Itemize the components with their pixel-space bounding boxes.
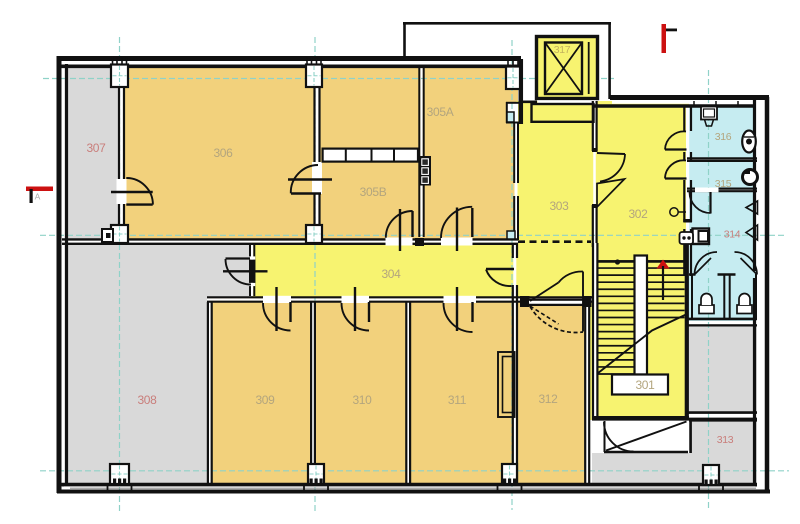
svg-text:305A: 305A [427, 105, 454, 119]
svg-text:316: 316 [715, 131, 732, 143]
svg-text:302: 302 [628, 207, 648, 221]
svg-text:311: 311 [448, 393, 467, 407]
svg-text:304: 304 [381, 267, 401, 281]
svg-text:313: 313 [717, 434, 734, 446]
svg-text:301: 301 [635, 378, 655, 392]
svg-text:305B: 305B [360, 185, 387, 199]
svg-text:306: 306 [213, 146, 233, 160]
svg-text:310: 310 [352, 393, 372, 407]
svg-text:303: 303 [549, 199, 569, 213]
svg-text:308: 308 [137, 393, 157, 407]
svg-text:A: A [35, 192, 41, 202]
svg-text:312: 312 [538, 392, 558, 406]
svg-text:314: 314 [724, 229, 741, 241]
svg-text:315: 315 [715, 178, 732, 190]
svg-text:309: 309 [255, 393, 275, 407]
svg-text:307: 307 [86, 141, 106, 155]
svg-text:317: 317 [554, 44, 571, 56]
